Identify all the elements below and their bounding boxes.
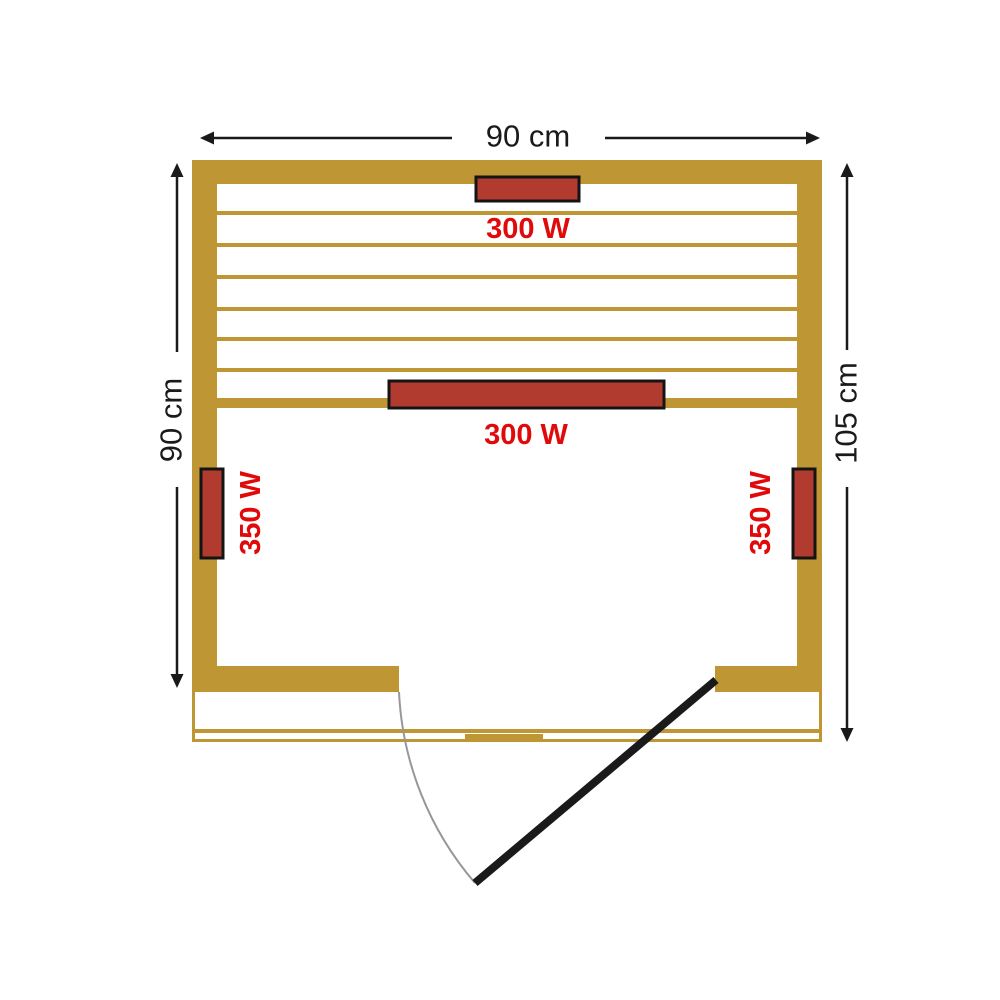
front-step-panel	[192, 692, 822, 742]
heater-middle-label: 300 W	[484, 419, 568, 451]
left-wall	[192, 160, 217, 692]
bench-slat	[217, 337, 797, 341]
dimension-width-label: 90 cm	[486, 119, 570, 154]
dimension-right-height: 105 cm	[829, 163, 864, 742]
step-panel-threshold	[465, 734, 543, 740]
arrow-down-icon	[171, 674, 184, 688]
step-panel-right-border	[819, 692, 822, 742]
heater-top	[476, 177, 579, 201]
dimension-left-height-label: 90 cm	[154, 378, 189, 462]
heaters: 300 W 300 W 350 W 350 W	[201, 177, 815, 558]
heater-top-label: 300 W	[486, 213, 570, 245]
door-swing-arc	[399, 692, 475, 883]
door-panel	[475, 680, 716, 883]
sauna-floor-plan: 300 W 300 W 350 W 350 W 90 cm 90 cm	[0, 0, 1000, 1000]
step-panel-left-border	[192, 692, 195, 742]
heater-left-label: 350 W	[235, 470, 267, 554]
dimension-width: 90 cm	[200, 119, 820, 154]
arrow-right-icon	[806, 132, 820, 145]
dimension-left-height: 90 cm	[154, 163, 189, 688]
heater-right	[793, 469, 815, 558]
heater-middle	[389, 381, 664, 408]
floor-plan-drawing: 300 W 300 W 350 W 350 W 90 cm 90 cm	[0, 0, 1000, 1000]
bench-slat	[217, 307, 797, 311]
arrow-left-icon	[200, 132, 214, 145]
arrow-up-icon	[171, 163, 184, 177]
arrow-down-icon	[841, 728, 854, 742]
right-wall	[797, 160, 822, 692]
door	[399, 680, 716, 883]
heater-right-label: 350 W	[745, 470, 777, 554]
bench-slat	[217, 368, 797, 372]
bench-slat	[217, 275, 797, 279]
dimension-right-height-label: 105 cm	[829, 362, 864, 464]
heater-left	[201, 469, 223, 558]
bottom-wall-right-segment	[715, 666, 822, 692]
step-panel-inner-line	[195, 729, 819, 733]
arrow-up-icon	[841, 163, 854, 177]
bottom-wall-left-segment	[192, 666, 399, 692]
